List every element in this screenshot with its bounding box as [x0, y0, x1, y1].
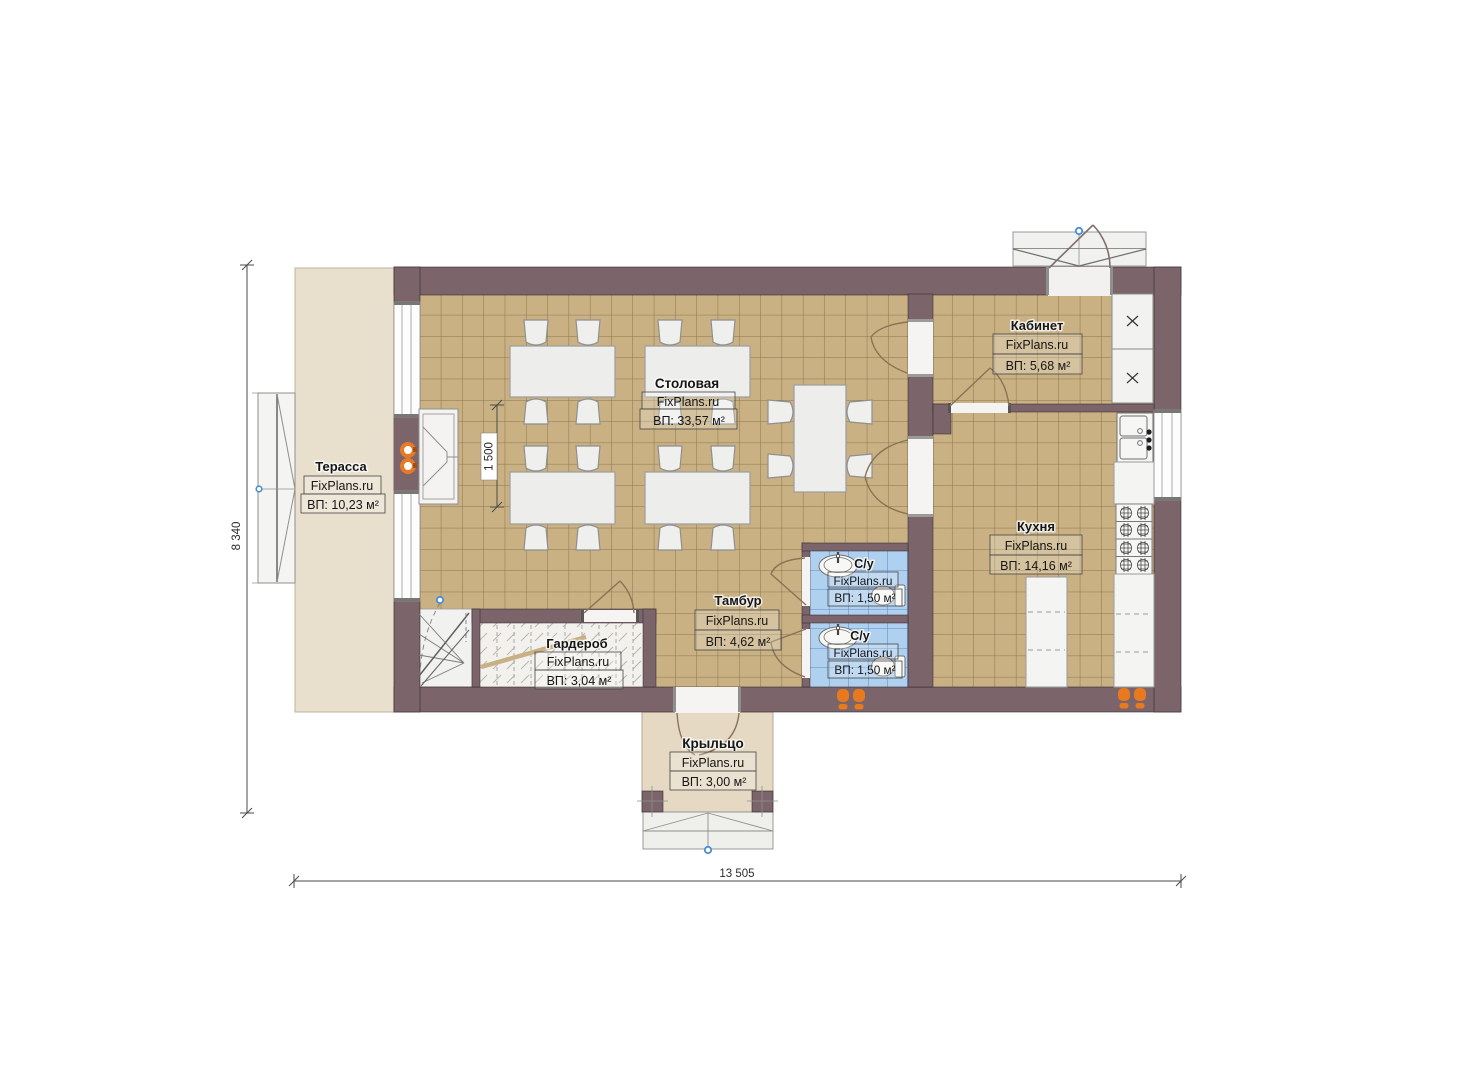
svg-text:ВП: 10,23 м²: ВП: 10,23 м² — [307, 498, 379, 512]
svg-text:С/у: С/у — [854, 557, 874, 571]
svg-text:1 500: 1 500 — [484, 442, 496, 471]
svg-text:FixPlans.ru: FixPlans.ru — [682, 756, 745, 770]
svg-text:Кухня: Кухня — [1017, 519, 1055, 534]
svg-text:Столовая: Столовая — [655, 376, 719, 391]
svg-text:8 340: 8 340 — [231, 522, 243, 551]
svg-text:Терасса: Терасса — [315, 459, 367, 474]
svg-text:ВП: 33,57 м²: ВП: 33,57 м² — [653, 414, 725, 428]
svg-text:13 505: 13 505 — [719, 868, 754, 880]
svg-text:FixPlans.ru: FixPlans.ru — [311, 479, 374, 493]
svg-text:Кабинет: Кабинет — [1011, 318, 1064, 333]
svg-text:ВП: 4,62 м²: ВП: 4,62 м² — [706, 635, 771, 649]
svg-text:С/у: С/у — [850, 629, 870, 643]
svg-text:FixPlans.ru: FixPlans.ru — [547, 655, 610, 669]
svg-text:ВП: 3,00 м²: ВП: 3,00 м² — [682, 775, 747, 789]
svg-text:ВП: 14,16 м²: ВП: 14,16 м² — [1000, 559, 1072, 573]
svg-text:Крыльцо: Крыльцо — [682, 736, 743, 751]
svg-text:ВП: 1,50 м²: ВП: 1,50 м² — [834, 663, 895, 677]
svg-text:FixPlans.ru: FixPlans.ru — [833, 646, 892, 660]
svg-text:FixPlans.ru: FixPlans.ru — [833, 574, 892, 588]
svg-text:Гардероб: Гардероб — [546, 636, 607, 651]
svg-text:FixPlans.ru: FixPlans.ru — [657, 395, 720, 409]
svg-text:ВП: 1,50 м²: ВП: 1,50 м² — [834, 591, 895, 605]
svg-text:FixPlans.ru: FixPlans.ru — [1006, 338, 1069, 352]
svg-text:FixPlans.ru: FixPlans.ru — [1005, 539, 1068, 553]
svg-text:ВП: 5,68 м²: ВП: 5,68 м² — [1006, 359, 1071, 373]
svg-text:Тамбур: Тамбур — [714, 593, 761, 608]
svg-text:ВП: 3,04 м²: ВП: 3,04 м² — [547, 674, 612, 688]
svg-text:FixPlans.ru: FixPlans.ru — [706, 614, 769, 628]
